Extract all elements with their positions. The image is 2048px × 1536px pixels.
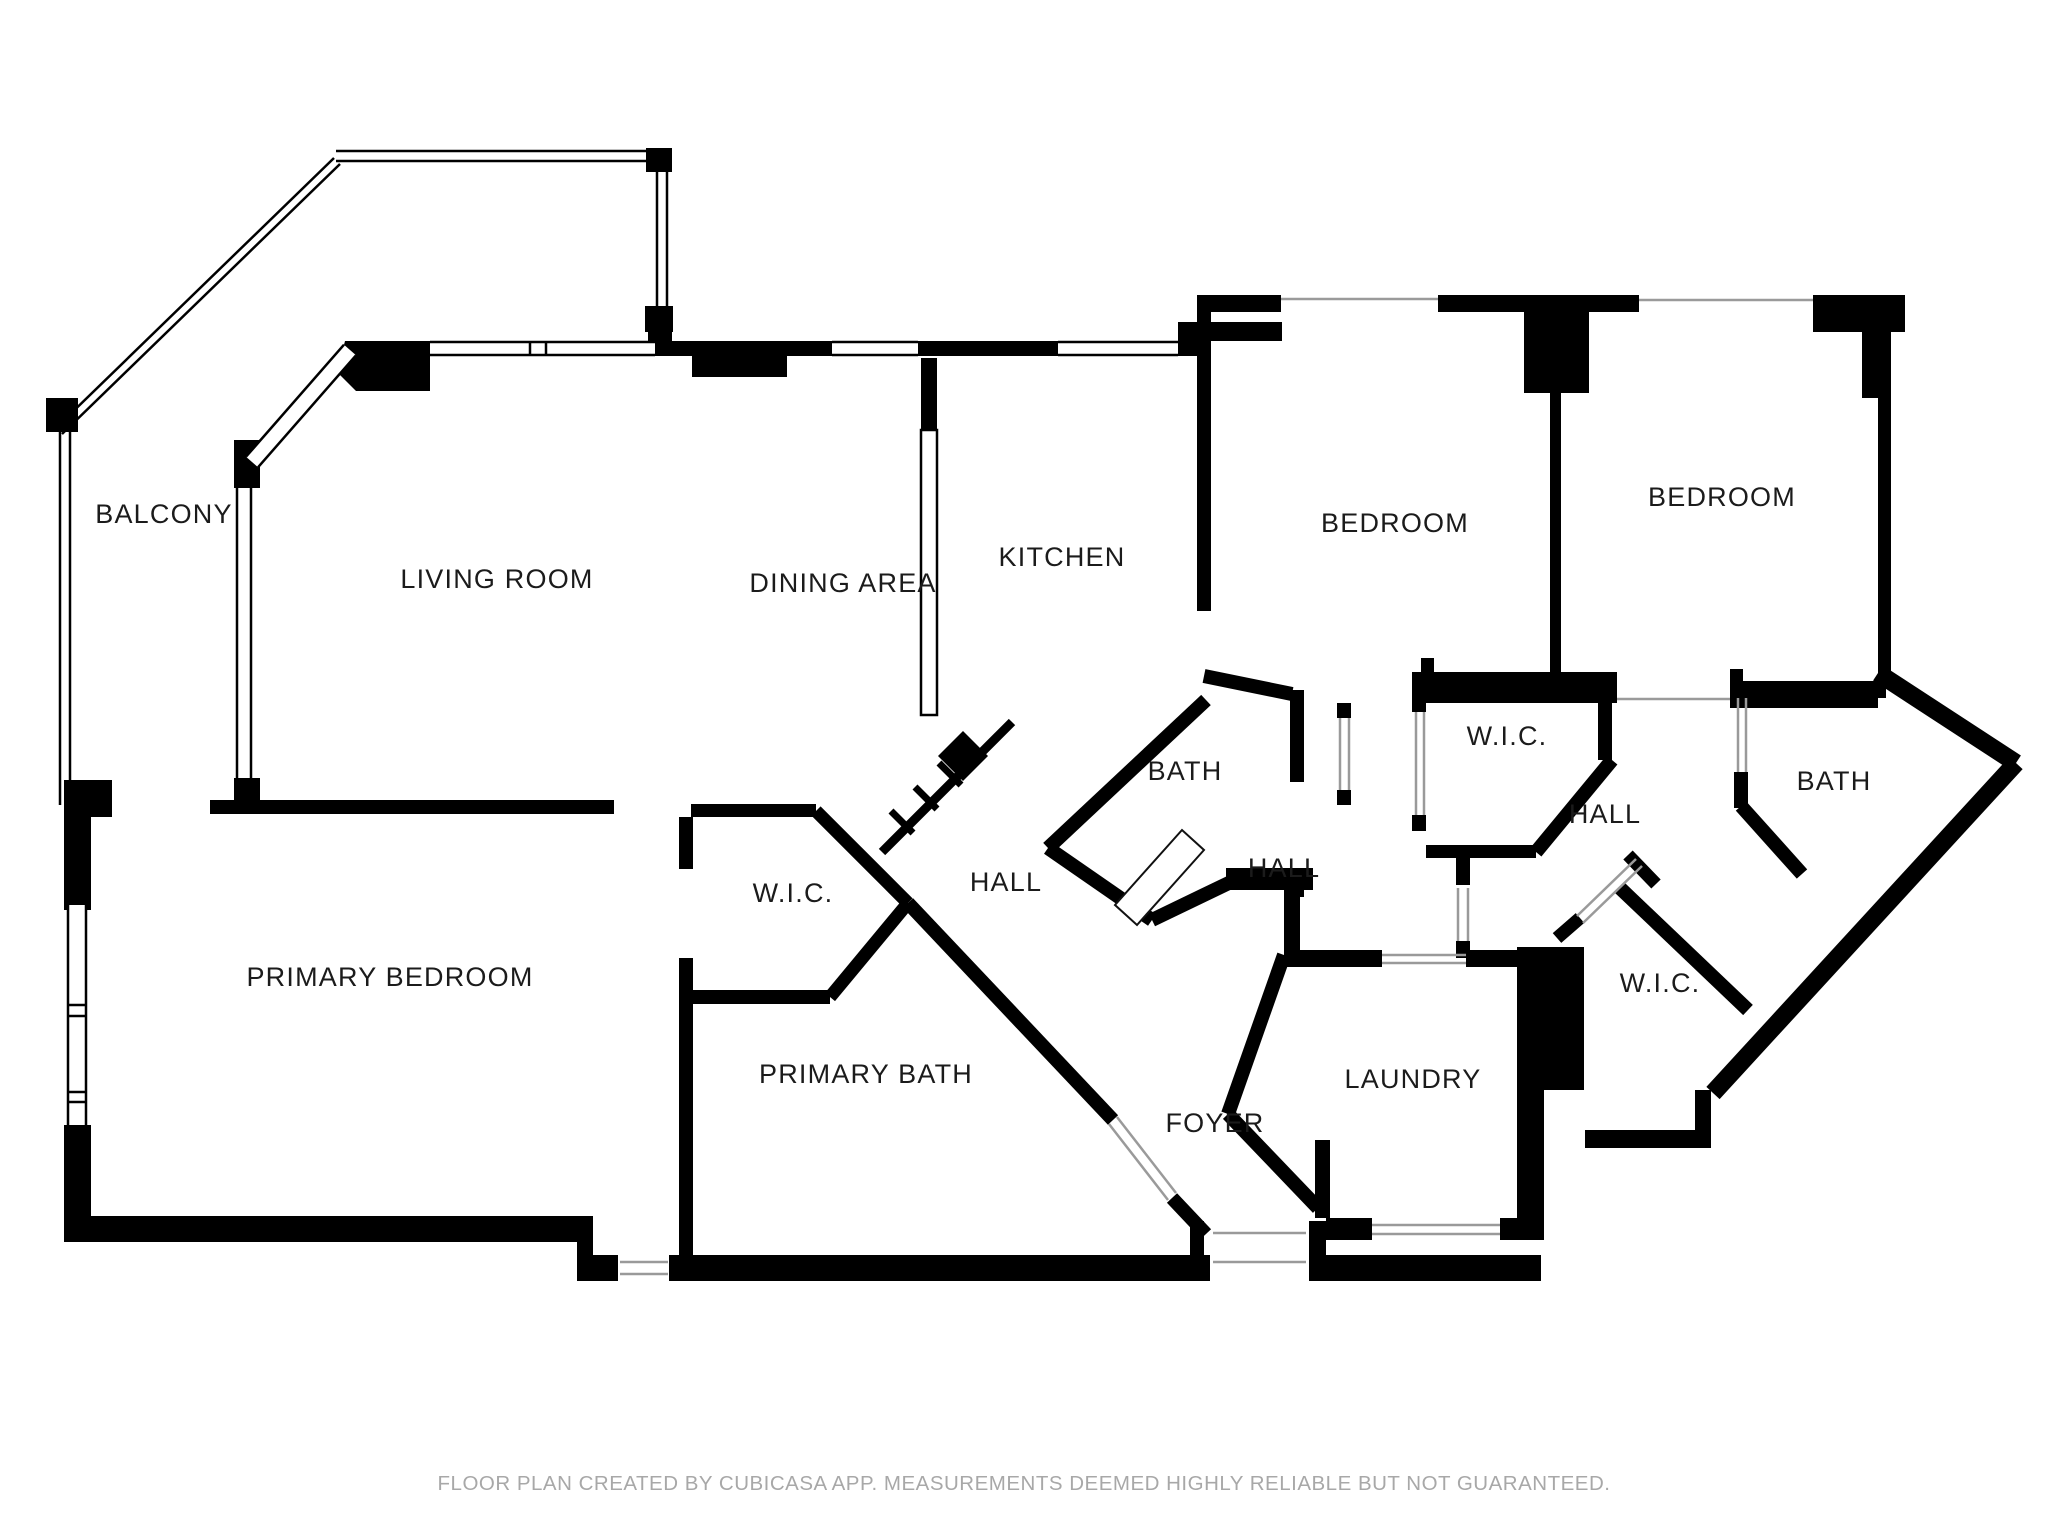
wall-rect: [669, 1255, 1210, 1281]
room-label-wic-top-right: W.I.C.: [1467, 721, 1548, 751]
wall-rect: [1337, 790, 1351, 805]
wall-rect: [577, 1216, 593, 1281]
floor-plan-drawing: BALCONYLIVING ROOMDINING AREAKITCHENBEDR…: [0, 0, 2048, 1536]
balcony-railing: [56, 158, 334, 428]
window: [236, 488, 252, 778]
wall-rect: [1309, 1255, 1541, 1281]
room-label-foyer: FOYER: [1165, 1108, 1264, 1138]
threshold-line: [1109, 1124, 1168, 1200]
room-label-bedroom-1: BEDROOM: [1321, 508, 1469, 538]
room-label-primary-bath: PRIMARY BATH: [759, 1059, 973, 1089]
wall-rect: [1197, 312, 1211, 611]
wall-rect: [691, 990, 830, 1004]
wall-rect: [1412, 690, 1426, 712]
room-label-kitchen: KITCHEN: [999, 542, 1126, 572]
wall-segment: [1741, 806, 1802, 874]
wall-segment: [1228, 955, 1284, 1114]
wall-rect: [1284, 950, 1382, 967]
balcony-railing: [62, 164, 340, 434]
wall-segment: [1172, 1198, 1206, 1234]
room-label-bath-middle: BATH: [1148, 756, 1223, 786]
room-label-laundry: LAUNDRY: [1345, 1064, 1482, 1094]
wall-segment: [1713, 763, 2016, 1093]
wall-rect: [1326, 1218, 1372, 1240]
window-edge: [258, 355, 356, 467]
wall-rect: [1695, 1090, 1711, 1148]
wall-rect: [1466, 950, 1517, 967]
wall-rect: [679, 817, 693, 869]
wall-segment: [882, 722, 1012, 852]
wall-rect: [1337, 703, 1351, 718]
wall-rect: [1878, 398, 1891, 673]
floor-plan-page: BALCONYLIVING ROOMDINING AREAKITCHENBEDR…: [0, 0, 2048, 1536]
wall-rect: [646, 148, 672, 172]
wall-rect: [1412, 672, 1617, 690]
wall-rect: [1517, 947, 1584, 1090]
wall-segment: [1557, 918, 1580, 938]
wall-rect: [668, 341, 832, 356]
wall-rect: [1598, 690, 1612, 760]
wall-rect: [1862, 332, 1891, 398]
room-label-dining-area: DINING AREA: [749, 568, 936, 598]
wall-rect: [1500, 1218, 1544, 1240]
wall-rect: [64, 1216, 593, 1242]
wall-rect: [921, 358, 937, 430]
room-label-bedroom-2: BEDROOM: [1648, 482, 1796, 512]
wall-rect: [1585, 1130, 1708, 1148]
room-label-wic-left: W.I.C.: [753, 878, 834, 908]
wall-rect: [691, 804, 816, 817]
wall-rect: [1456, 858, 1470, 885]
wall-segment: [830, 903, 908, 997]
room-label-hall-left: HALL: [970, 867, 1042, 897]
wall-segment: [1628, 855, 1656, 884]
wall-rect: [593, 1255, 618, 1281]
wall-rect: [210, 800, 614, 814]
room-label-hall-center: HALL: [1248, 853, 1320, 883]
wall-rect: [1438, 295, 1639, 312]
window-edge: [246, 345, 344, 457]
wall-rect: [1524, 312, 1589, 393]
wall-rect: [1550, 393, 1561, 672]
wall-polygon: [337, 341, 430, 391]
wall-rect: [679, 958, 693, 1268]
wall-rect: [46, 398, 78, 432]
wall-rect: [645, 306, 673, 332]
wall-rect: [1197, 295, 1281, 312]
wall-rect: [918, 341, 1058, 356]
wall-rect: [234, 778, 260, 802]
room-label-primary-bedroom: PRIMARY BEDROOM: [246, 962, 533, 992]
wall-segment: [1204, 676, 1292, 694]
wall-rect: [1290, 690, 1304, 782]
wall-rect: [692, 356, 787, 377]
window: [252, 350, 350, 462]
wall-rect: [1426, 845, 1536, 858]
room-label-wic-bottom-right: W.I.C.: [1620, 968, 1701, 998]
room-label-balcony: BALCONY: [95, 499, 232, 529]
wall-segment: [1878, 673, 2016, 763]
wall-rect: [1813, 295, 1905, 332]
wall-rect: [64, 808, 91, 910]
wall-rect: [1412, 815, 1426, 831]
footer-disclaimer: FLOOR PLAN CREATED BY CUBICASA APP. MEAS…: [0, 1472, 2048, 1496]
room-label-bath-right: BATH: [1797, 766, 1872, 796]
room-label-hall-right: HALL: [1569, 799, 1641, 829]
wall-rect: [1178, 322, 1282, 341]
wall-rect: [1517, 1090, 1544, 1240]
room-label-living-room: LIVING ROOM: [400, 564, 593, 594]
wall-rect: [1284, 890, 1300, 950]
wall-rect: [1734, 681, 1886, 698]
